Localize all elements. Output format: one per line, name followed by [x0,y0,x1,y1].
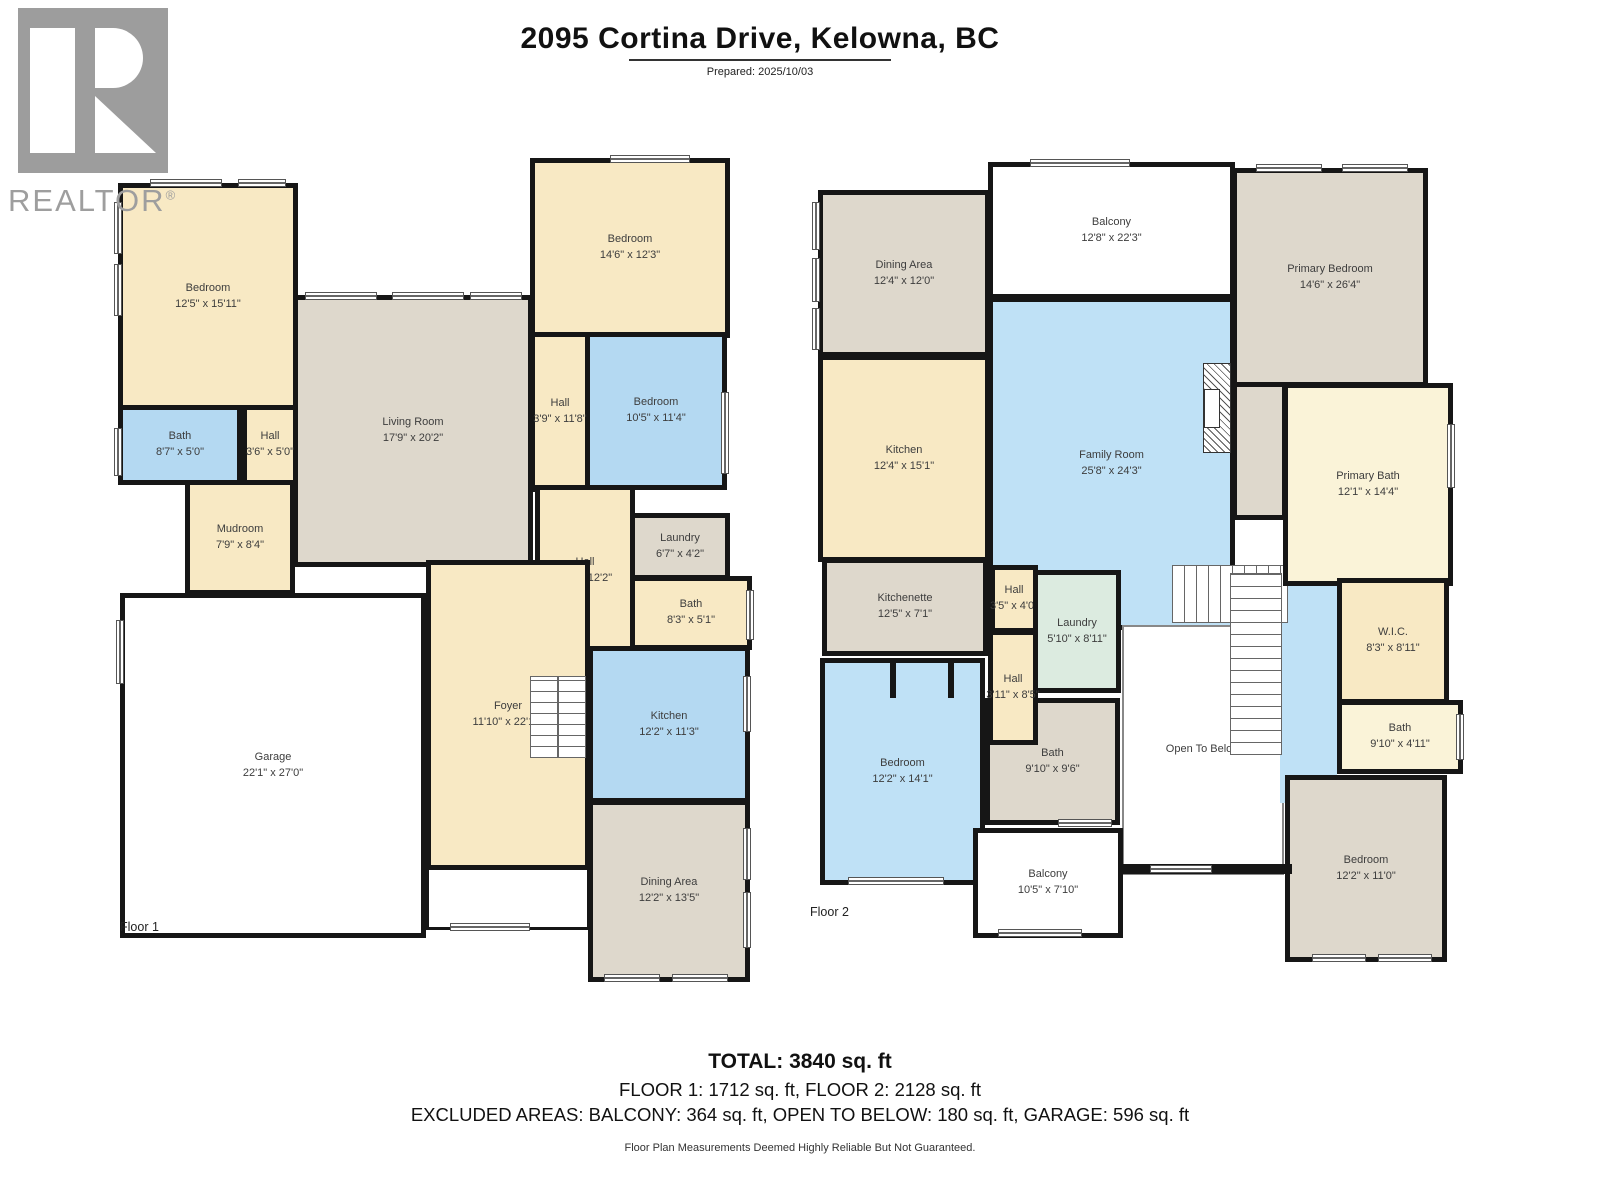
window [721,392,729,474]
window [743,892,751,948]
f1-laundry: Laundry6'7" x 4'2" [630,513,730,580]
f2-hall-2: Hall3'11" x 8'5" [988,630,1038,745]
f2-kitchenette: Kitchenette12'5" x 7'1" [822,558,988,656]
disclaimer: Floor Plan Measurements Deemed Highly Re… [0,1142,1600,1154]
window [746,590,754,640]
window [812,202,820,250]
window [1150,865,1212,873]
window [610,155,690,163]
f1-living-room: Living Room17'9" x 20'2" [293,295,533,567]
excluded-areas: EXCLUDED AREAS: BALCONY: 364 sq. ft, OPE… [0,1104,1600,1126]
f2-bedroom-2: Bedroom12'2" x 11'0" [1285,775,1447,962]
f2-primary-bedroom: Primary Bedroom14'6" x 26'4" [1232,168,1428,387]
window [812,308,820,350]
f1-porch [426,866,590,930]
f2-hall-1: Hall3'5" x 4'0" [990,565,1038,633]
window [1312,954,1366,962]
realtor-r-icon [18,8,168,173]
f1-kitchen: Kitchen12'2" x 11'3" [588,646,750,803]
f1-garage: Garage22'1" x 27'0" [120,593,426,938]
window [114,264,122,316]
f2-dining-area: Dining Area12'4" x 12'0" [818,190,990,357]
window [743,676,751,732]
closet-wall [948,660,954,698]
window [470,292,522,300]
fireplace [1203,363,1231,453]
f2-balcony-top: Balcony12'8" x 22'3" [988,162,1235,299]
floor1-label: Floor 1 [120,920,159,934]
window [1030,159,1130,167]
fireplace-notch [1204,389,1220,428]
floor2-label: Floor 2 [810,905,849,919]
window [998,929,1082,937]
realtor-logo: REALTOR® [18,8,208,219]
f2-bedroom-1: Bedroom12'2" x 14'1" [820,658,985,885]
header: 2095 Cortina Drive, Kelowna, BC Prepared… [0,22,1520,78]
window [1256,164,1322,172]
page-title: 2095 Cortina Drive, Kelowna, BC [0,22,1520,56]
f2-balcony-bottom: Balcony10'5" x 7'10" [973,828,1123,938]
window [1342,164,1408,172]
f1-hall-1: Hall3'6" x 5'0" [242,405,298,485]
window [1456,714,1464,760]
f1-bedroom-2: Bedroom14'6" x 12'3" [530,158,730,338]
f2-bath-2: Bath9'10" x 4'11" [1337,700,1463,774]
window [305,292,377,300]
f2-stair-landing [1280,578,1337,803]
window [743,828,751,880]
window [672,974,728,982]
window [1378,954,1432,962]
total-area: TOTAL: 3840 sq. ft [0,1050,1600,1074]
floor-areas: FLOOR 1: 1712 sq. ft, FLOOR 2: 2128 sq. … [0,1079,1600,1101]
window [848,877,944,885]
window [450,923,530,931]
f1-bath-2: Bath8'3" x 5'1" [630,576,752,650]
f2-primary-bath: Primary Bath12'1" x 14'4" [1283,383,1453,586]
f1-hall-2: Hall3'9" x 11'8" [530,332,590,492]
window [392,292,464,300]
staircase [1230,573,1282,755]
window [114,428,122,476]
prepared-date: Prepared: 2025/10/03 [0,66,1520,78]
f1-dining-area: Dining Area12'2" x 13'5" [588,800,750,982]
window [1447,424,1455,488]
window [238,179,286,187]
footer: TOTAL: 3840 sq. ft FLOOR 1: 1712 sq. ft,… [0,1050,1600,1154]
window [1058,819,1112,827]
f1-bedroom-3: Bedroom10'5" x 11'4" [585,332,727,490]
window [116,620,124,684]
floorplan-page: Living Room17'9" x 20'2" Bedroom12'5" x … [0,0,1600,1200]
realtor-logo-text: REALTOR® [8,183,208,219]
f2-laundry: Laundry5'10" x 8'11" [1033,570,1121,693]
f2-kitchen: Kitchen12'4" x 15'1" [818,355,990,562]
closet-wall [890,660,896,698]
f1-bath-1: Bath8'7" x 5'0" [118,405,242,485]
f1-mudroom: Mudroom7'9" x 8'4" [185,480,295,595]
f2-wic: W.I.C.8'3" x 8'11" [1337,578,1449,704]
title-underline [629,59,891,61]
window [604,974,660,982]
window [812,258,820,302]
staircase [530,676,586,758]
